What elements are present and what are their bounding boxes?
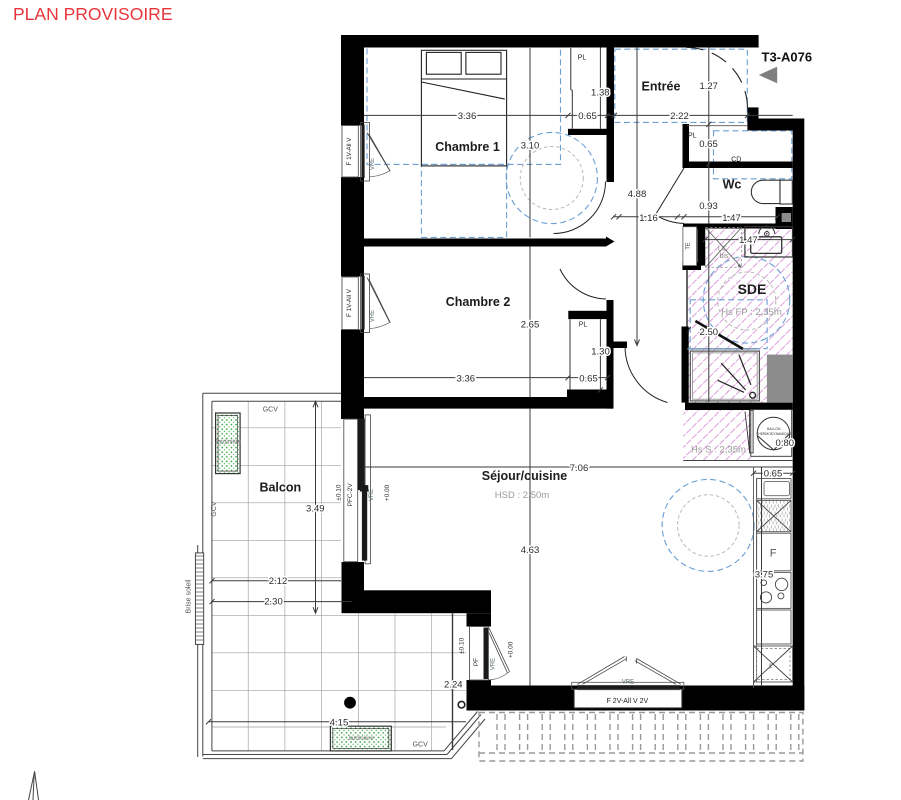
svg-text:Entrée: Entrée [642,80,681,94]
svg-text:7.06: 7.06 [570,463,589,474]
svg-text:+0.00: +0.00 [507,641,514,658]
svg-text:0.65: 0.65 [579,373,598,384]
svg-text:GCV: GCV [263,406,279,413]
svg-text:2.22: 2.22 [670,111,689,122]
svg-text:1.30: 1.30 [591,347,610,358]
svg-text:2.30: 2.30 [264,596,283,607]
svg-text:2.12: 2.12 [269,576,288,587]
svg-text:GCV: GCV [413,742,429,749]
svg-text:F 2V-All V 2V: F 2V-All V 2V [607,698,649,705]
svg-text:0.65: 0.65 [764,469,783,480]
svg-text:Séjour/cuisine: Séjour/cuisine [482,469,567,483]
svg-text:4.63: 4.63 [521,545,540,556]
svg-text:bis: bis [720,253,729,260]
svg-text:TE: TE [685,242,691,249]
svg-text:Brise soleil: Brise soleil [186,579,193,613]
svg-text:GCV: GCV [211,501,218,517]
svg-text:2.50: 2.50 [700,327,719,338]
svg-text:3.10: 3.10 [521,141,540,152]
svg-text:1.47: 1.47 [722,213,741,224]
svg-text:VRE: VRE [491,658,497,670]
svg-text:Jardinière: Jardinière [347,736,374,742]
svg-text:VRE: VRE [369,489,375,501]
svg-text:PL: PL [579,321,588,328]
svg-text:Chambre 1: Chambre 1 [435,140,500,154]
svg-text:3.49: 3.49 [306,504,325,515]
svg-text:Hs S : 2,35m: Hs S : 2,35m [691,444,746,455]
svg-text:3.36: 3.36 [457,373,476,384]
svg-text:PFC-2V: PFC-2V [347,483,354,507]
svg-text:PF: PF [473,658,480,666]
svg-text:VRE: VRE [370,158,376,170]
svg-text:T3-A076: T3-A076 [762,50,813,65]
svg-text:Wc: Wc [723,178,742,192]
svg-text:+0.00: +0.00 [384,484,391,501]
svg-text:PL: PL [578,55,587,62]
svg-text:±0.10: ±0.10 [458,637,465,654]
svg-text:3.75: 3.75 [755,570,774,581]
svg-text:1.47: 1.47 [739,235,758,246]
svg-text:0.65: 0.65 [699,139,718,150]
svg-text:Jardinière: Jardinière [215,439,242,445]
svg-text:F 1V-All V: F 1V-All V [346,288,353,317]
svg-text:0.80: 0.80 [776,438,795,449]
svg-text:TE: TE [768,663,773,669]
svg-text:Balcon: Balcon [259,481,301,495]
svg-text:PL: PL [688,132,697,139]
svg-text:3.36: 3.36 [458,111,477,122]
svg-text:Chambre 2: Chambre 2 [446,295,511,309]
svg-text:CD: CD [731,156,741,163]
svg-text:0.93: 0.93 [699,201,718,212]
svg-text:0.65: 0.65 [578,111,597,122]
svg-text:HSD : 2,50m: HSD : 2,50m [495,490,549,501]
svg-text:PLAN PROVISOIRE: PLAN PROVISOIRE [13,4,173,24]
svg-text:THERMODYNAMIQUE: THERMODYNAMIQUE [756,432,792,436]
svg-text:1.38: 1.38 [591,88,610,99]
svg-text:F: F [770,547,777,559]
svg-text:VRE: VRE [370,310,376,322]
svg-text:4.88: 4.88 [628,189,647,200]
svg-text:±0.10: ±0.10 [336,484,343,501]
svg-text:1.27: 1.27 [699,81,718,92]
svg-text:F 1V-All V: F 1V-All V [346,137,353,166]
svg-text:SDE: SDE [738,281,767,297]
svg-text:1.16: 1.16 [639,213,658,224]
svg-text:BALLON: BALLON [767,427,781,431]
svg-text:2.24: 2.24 [444,680,463,691]
svg-text:Hs FP : 2,35m: Hs FP : 2,35m [721,307,782,318]
svg-text:LC: LC [718,245,727,252]
svg-text:2.65: 2.65 [521,320,540,331]
svg-text:VRE: VRE [622,680,634,686]
svg-text:4.15: 4.15 [330,718,349,729]
